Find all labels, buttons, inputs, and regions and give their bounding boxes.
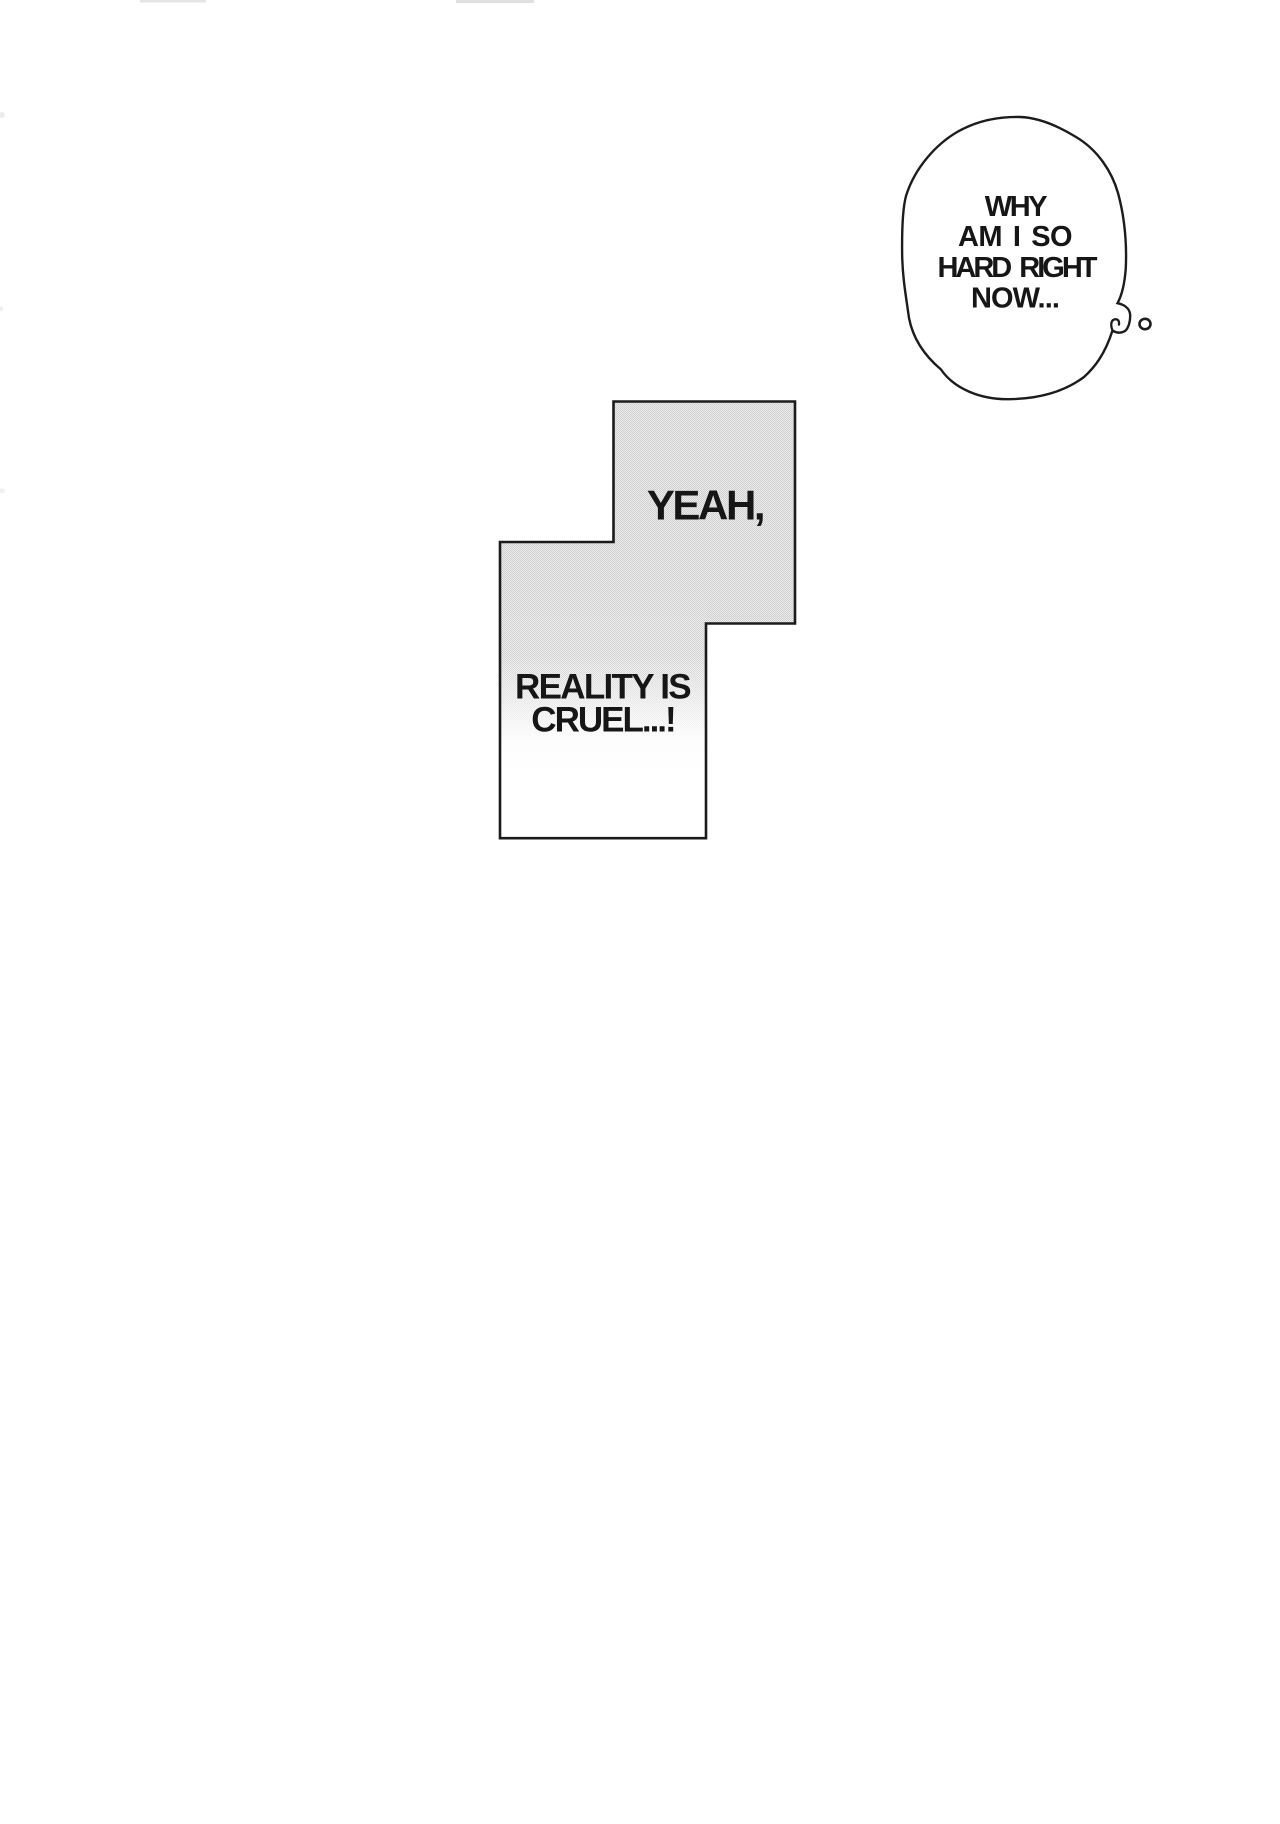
svg-text:CRUEL...!: CRUEL...!	[531, 701, 674, 740]
svg-text:HARD RIGHT: HARD RIGHT	[937, 252, 1097, 284]
svg-text:WHY: WHY	[985, 191, 1048, 223]
svg-text:AM I SO: AM I SO	[958, 221, 1072, 253]
svg-text:NOW...: NOW...	[971, 282, 1059, 314]
svg-text:YEAH,: YEAH,	[647, 482, 763, 529]
